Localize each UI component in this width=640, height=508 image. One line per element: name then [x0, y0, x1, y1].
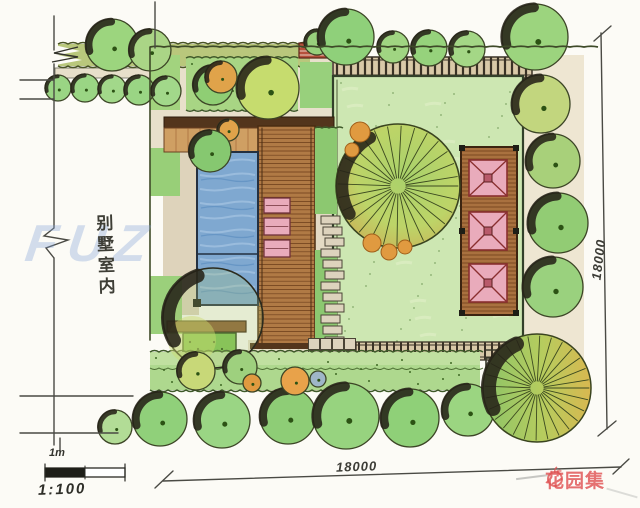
side-label-char: 墅 [93, 234, 118, 256]
apple-icon [545, 466, 565, 488]
umbrella-canopies [469, 160, 507, 302]
side-label-char: 室 [94, 255, 119, 277]
garden-plan-page: FUZ 别 墅 室 内 1m 1:100 18000 18000 花园集 [0, 0, 640, 508]
scale-bar-unit-label: 1m [49, 447, 65, 459]
side-label-char: 别 [93, 213, 118, 235]
dimension-label-bottom: 18000 [336, 458, 378, 474]
garden-collection-logo: 花园集 [545, 466, 605, 493]
site-side-label: 别 墅 室 内 [93, 213, 120, 298]
radial-tree [483, 334, 591, 442]
side-label-char: 内 [95, 276, 120, 298]
studio-watermark: FUZ [22, 214, 162, 274]
scale-ratio-label: 1:100 [38, 480, 87, 499]
sun-loungers [264, 198, 290, 257]
